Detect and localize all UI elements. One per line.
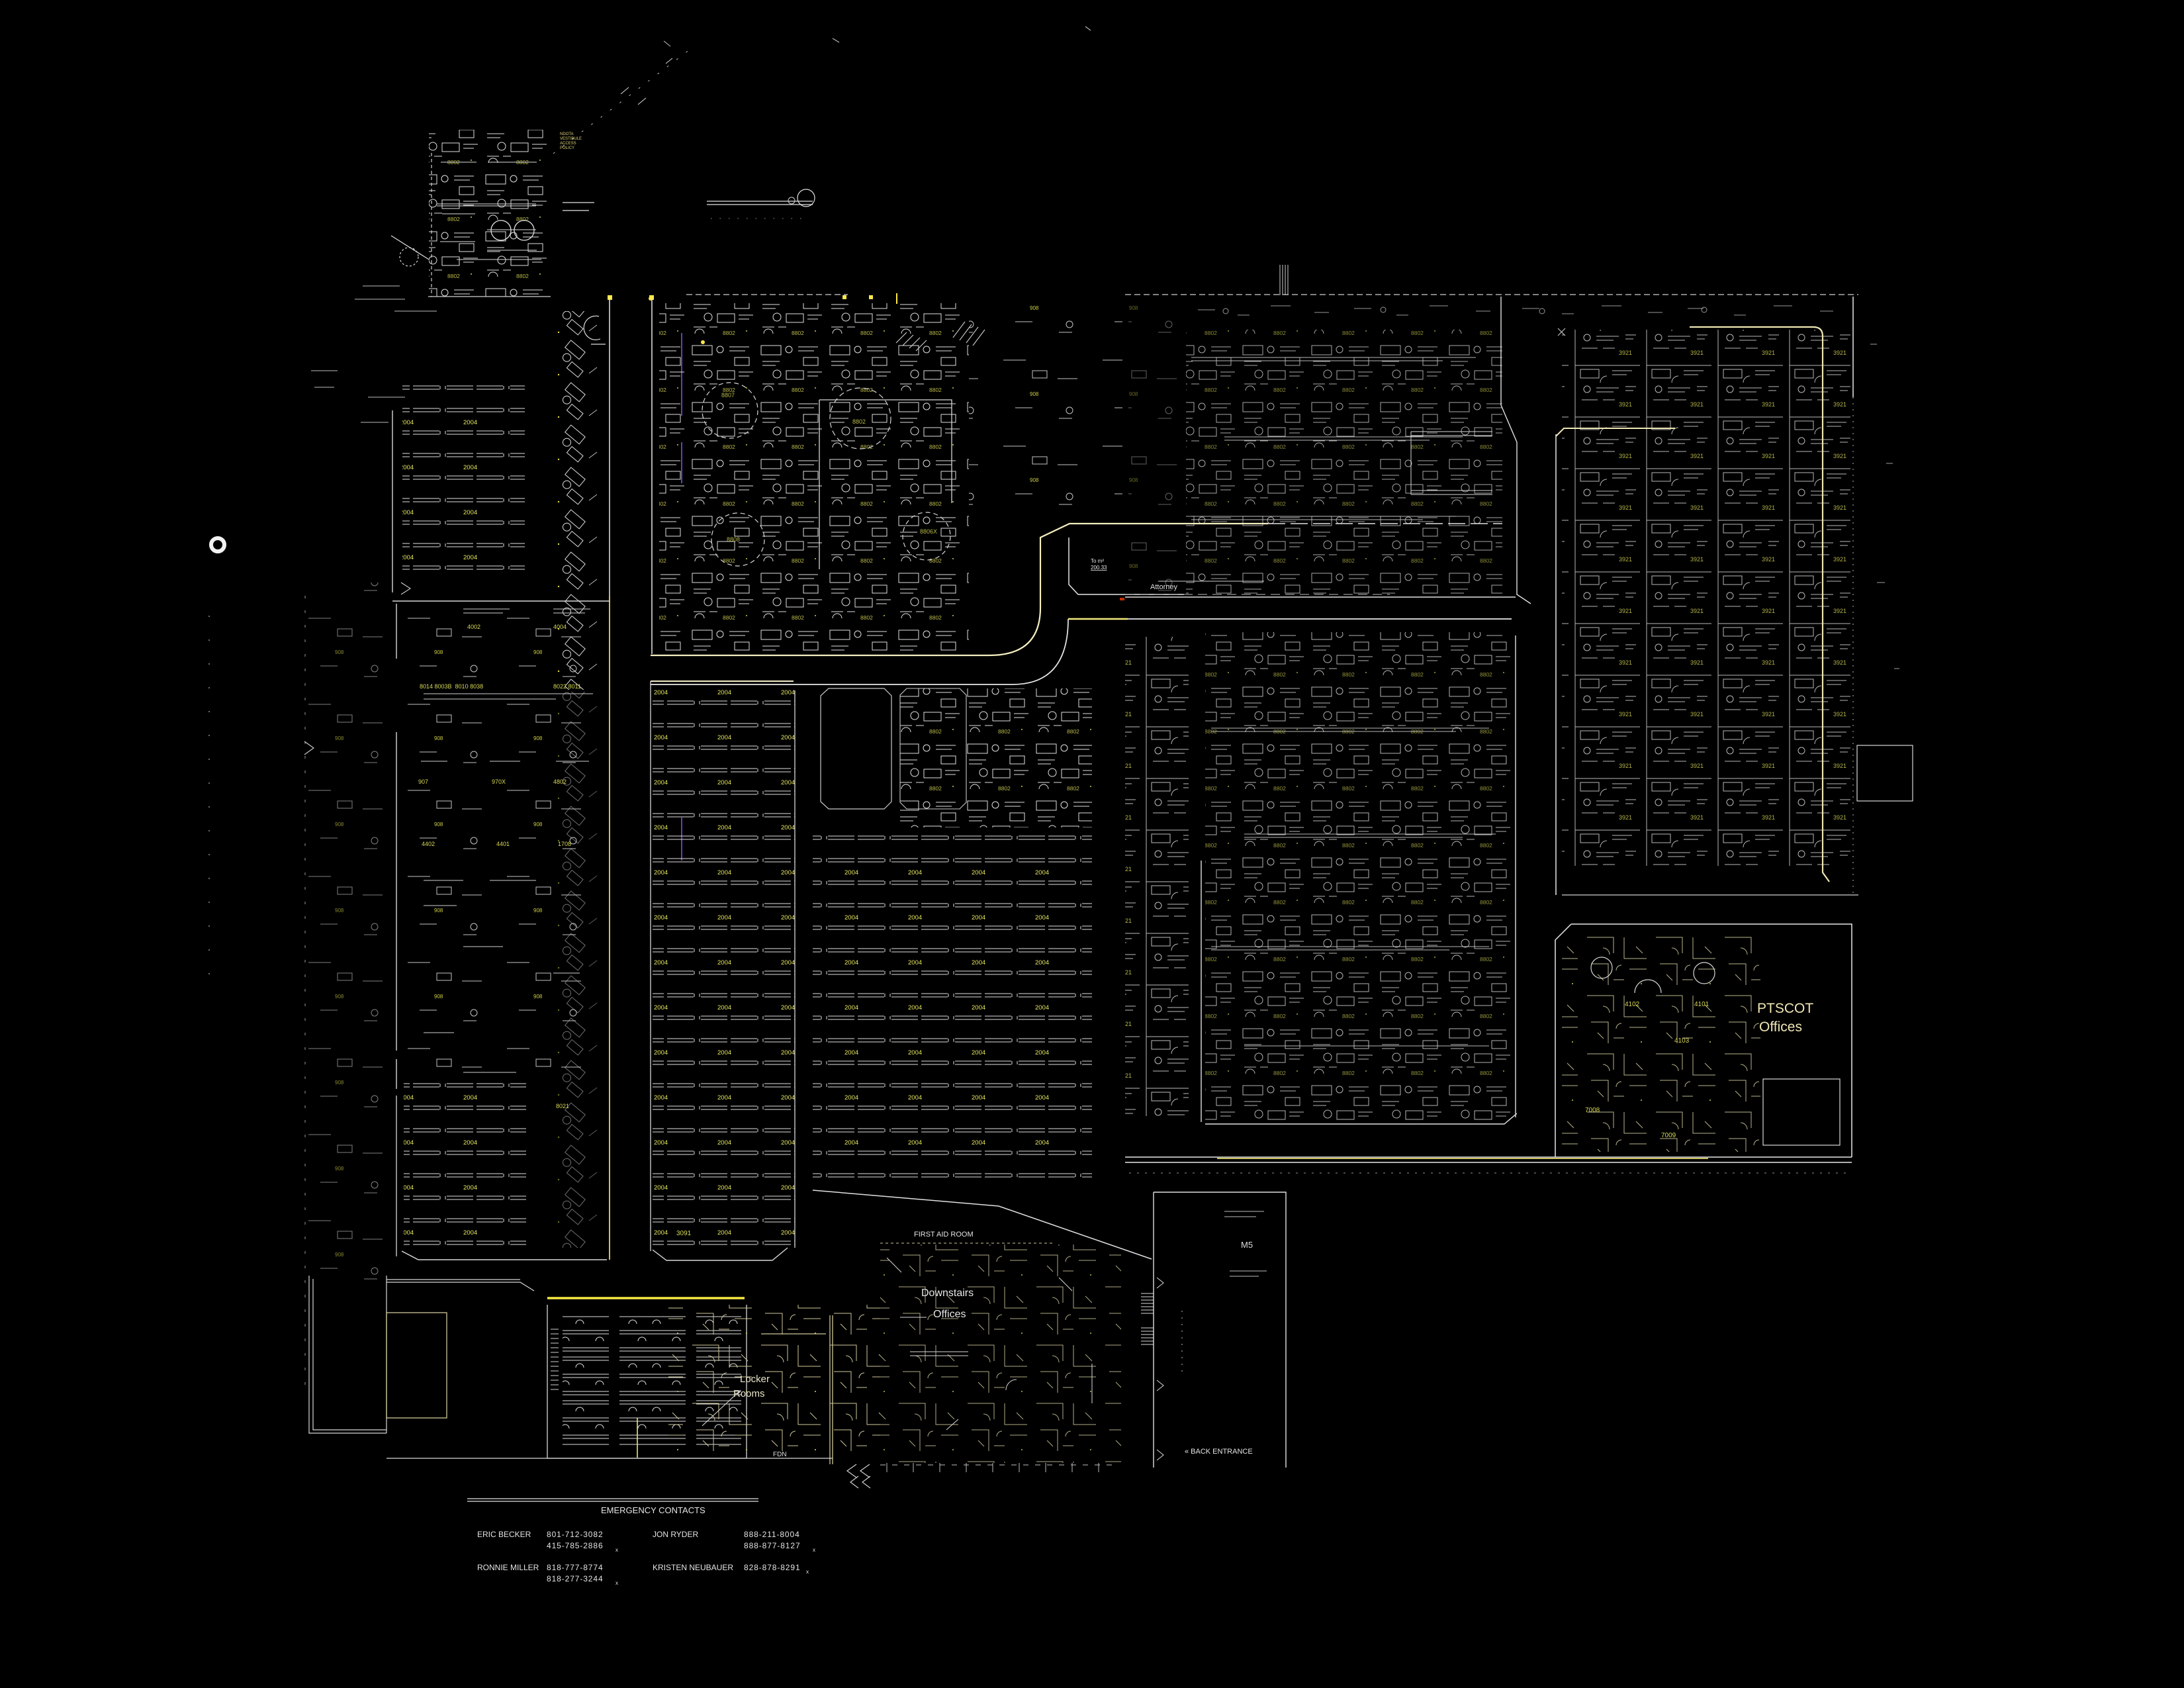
svg-text:828-878-8291: 828-878-8291 — [744, 1563, 801, 1572]
svg-text:970X: 970X — [492, 778, 506, 785]
svg-text:4103: 4103 — [1674, 1037, 1690, 1045]
svg-text:4402: 4402 — [422, 841, 435, 847]
svg-text:3091: 3091 — [676, 1230, 692, 1237]
svg-text:8807: 8807 — [721, 392, 735, 399]
svg-text:888-211-8004: 888-211-8004 — [744, 1530, 800, 1539]
svg-text:x: x — [615, 1547, 618, 1553]
svg-text:4401: 4401 — [496, 841, 510, 847]
svg-text:To m²: To m² — [1091, 558, 1104, 564]
svg-text:Rooms: Rooms — [733, 1388, 765, 1399]
svg-text:x: x — [806, 1569, 809, 1575]
svg-text:FIRST AID ROOM: FIRST AID ROOM — [914, 1231, 974, 1239]
svg-text:Locker: Locker — [740, 1374, 770, 1385]
svg-text:Offices: Offices — [1759, 1019, 1802, 1035]
svg-text:Offices: Offices — [933, 1309, 966, 1320]
svg-text:4002: 4002 — [467, 624, 480, 630]
svg-text:Attorney: Attorney — [1150, 583, 1177, 591]
svg-text:FDN: FDN — [773, 1451, 787, 1458]
svg-text:8022 8011: 8022 8011 — [553, 683, 581, 690]
svg-text:7008: 7008 — [1585, 1107, 1600, 1114]
svg-text:8808: 8808 — [727, 536, 740, 543]
svg-text:4004: 4004 — [553, 624, 567, 630]
svg-text:818-777-8774: 818-777-8774 — [547, 1563, 604, 1572]
svg-text:415-785-2886: 415-785-2886 — [547, 1541, 604, 1550]
svg-text:Downstairs: Downstairs — [921, 1288, 974, 1299]
svg-text:POLICY: POLICY — [560, 146, 574, 150]
svg-text:8806X: 8806X — [920, 528, 937, 535]
svg-text:ERIC BECKER: ERIC BECKER — [477, 1530, 531, 1539]
svg-text:8802: 8802 — [852, 418, 866, 425]
svg-text:ACCESS: ACCESS — [560, 142, 576, 146]
svg-text:RONNIE MILLER: RONNIE MILLER — [477, 1563, 539, 1572]
svg-text:EMERGENCY CONTACTS: EMERGENCY CONTACTS — [601, 1505, 705, 1515]
svg-text:4802: 4802 — [553, 778, 567, 785]
svg-text:NDOTA: NDOTA — [560, 132, 574, 136]
svg-text:1708: 1708 — [558, 841, 571, 847]
svg-text:JON RYDER: JON RYDER — [653, 1530, 698, 1539]
svg-text:« BACK ENTRANCE: « BACK ENTRANCE — [1185, 1448, 1253, 1456]
svg-text:8014 8003B 8010 8038: 8014 8003B 8010 8038 — [420, 683, 483, 690]
svg-text:801-712-3082: 801-712-3082 — [547, 1530, 604, 1539]
svg-text:4101: 4101 — [1694, 1001, 1709, 1008]
svg-text:VESTIBULE: VESTIBULE — [560, 137, 582, 141]
svg-text:7009: 7009 — [1661, 1132, 1676, 1139]
svg-text:8021: 8021 — [556, 1103, 569, 1109]
svg-text:4102: 4102 — [1625, 1001, 1640, 1008]
svg-text:907: 907 — [418, 778, 428, 785]
svg-text:888-877-8127: 888-877-8127 — [744, 1541, 801, 1550]
svg-text:x: x — [813, 1547, 815, 1553]
svg-text:M5: M5 — [1241, 1240, 1253, 1250]
svg-text:818-277-3244: 818-277-3244 — [547, 1574, 604, 1583]
svg-text:200.33: 200.33 — [1091, 565, 1107, 571]
svg-text:KRISTEN NEUBAUER: KRISTEN NEUBAUER — [653, 1563, 733, 1572]
svg-text:x: x — [615, 1580, 618, 1586]
svg-text:PTSCOT: PTSCOT — [1757, 1001, 1813, 1016]
